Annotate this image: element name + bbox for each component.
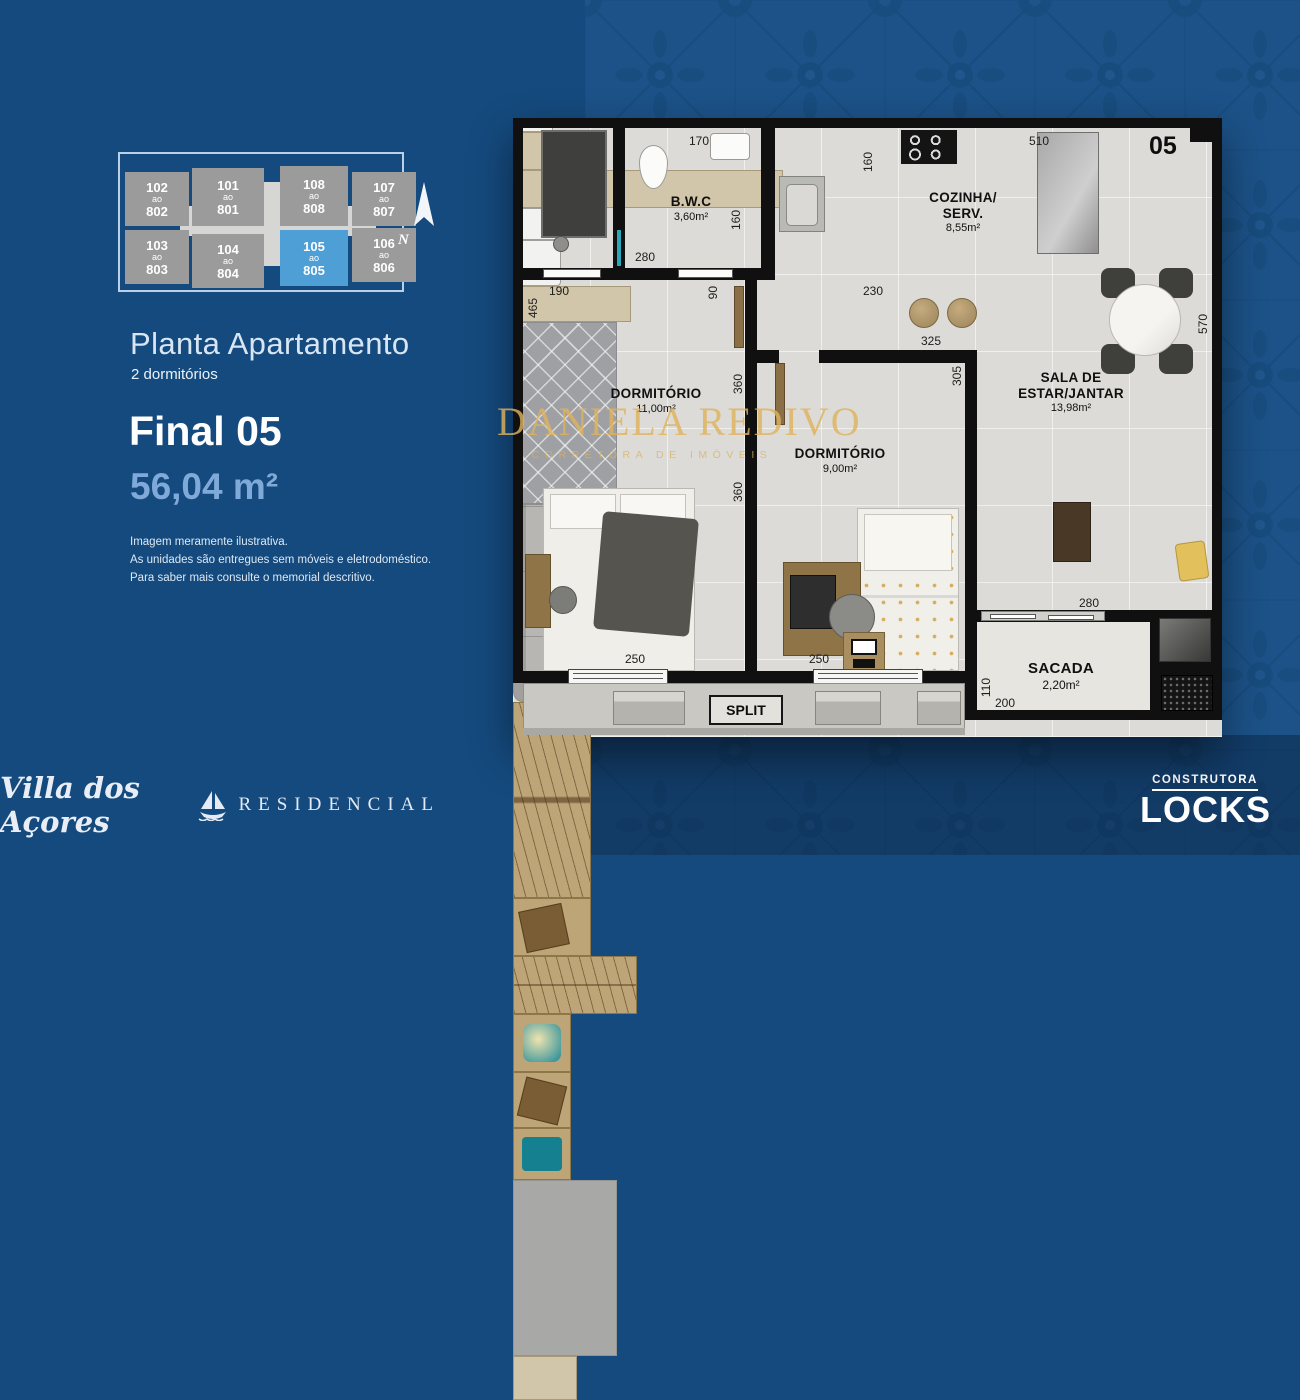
room-label-sacada: SACADA 2,20m² [993, 660, 1129, 692]
keyplan-unit-101-801: 101 ao 801 [192, 168, 264, 226]
room-label-sala: SALA DE ESTAR/JANTAR 13,98m² [1000, 370, 1142, 414]
dorm2-shelf-3 [513, 1128, 571, 1180]
dorm2-clothes-teal-yellow [523, 1024, 561, 1062]
dim-kitchen-left: 160 [861, 152, 875, 172]
dorm1-desk [525, 554, 551, 628]
dorm2-folded-clothes [517, 1077, 567, 1126]
unit-total-area: 56,04 m² [130, 466, 278, 508]
dim-dorm2-window: 250 [809, 652, 829, 666]
dim-sofa-bottom: 280 [1079, 596, 1099, 610]
keyplan-unit-103-803: 103 ao 803 [125, 230, 189, 284]
wall-dorm2-top-a [757, 350, 779, 363]
split-unit-2 [815, 691, 881, 725]
dim-dorm2-top: 325 [921, 334, 941, 348]
plan-unit-number: 05 [1149, 132, 1177, 161]
wall-dorm2-top-b [819, 350, 977, 363]
dorm2-blanket-fold [858, 595, 958, 598]
dorm2-shelf-2 [513, 1072, 571, 1128]
dining-table [1109, 284, 1181, 356]
page-subtitle: 2 dormitórios [131, 366, 218, 383]
locks-text: LOCKS [1140, 791, 1270, 829]
bwc-door [678, 269, 733, 278]
keyplan-unit-108-808: 108 ao 808 [280, 166, 348, 226]
dim-sacada-bottom: 200 [995, 696, 1015, 710]
dorm1-bed [543, 488, 695, 671]
keyplan-unit-104-804: 104 ao 804 [192, 234, 264, 288]
dim-wall-lower: 360 [731, 482, 745, 502]
dim-sala-right: 570 [1196, 314, 1210, 334]
north-label: N [398, 232, 409, 249]
shower-glass [617, 230, 621, 266]
dim-dorm2-right: 305 [950, 366, 964, 386]
dim-kitchen-top: 510 [1029, 134, 1049, 148]
entry-door [543, 269, 601, 278]
building-keyplan: 102 ao 802 101 ao 801 108 ao 808 107 ao … [118, 152, 404, 292]
disclaimer-line-2: As unidades são entregues sem móveis e e… [130, 554, 431, 566]
dorm2-pillow [864, 514, 952, 571]
dorm1-door [734, 286, 744, 348]
utility-grill [1159, 618, 1211, 662]
dorm2-wardrobe [513, 956, 637, 1014]
sailboat-icon [198, 789, 228, 821]
unit-final-label: Final 05 [129, 408, 282, 455]
wall-sacada-left [965, 610, 977, 720]
dorm2-rug [513, 1180, 617, 1356]
dorm1-window [568, 669, 668, 684]
sofa-pillow [1175, 540, 1210, 582]
nightstand-drawer-2 [853, 659, 875, 668]
shower-head [553, 236, 569, 252]
keyplan-unit-105-805-highlighted: 105 ao 805 [280, 230, 348, 286]
construtora-locks-logo: CONSTRUTORA LOCKS [1140, 770, 1270, 829]
dim-dorm1-left: 465 [526, 298, 540, 318]
refrigerator [1037, 132, 1099, 254]
dorm1-chair [549, 586, 577, 614]
dim-dorm1-shelf: 190 [549, 284, 569, 298]
residencial-text: RESIDENCIAL [238, 794, 440, 816]
watermark-tagline: CORRETORA DE IMÓVEIS [497, 449, 807, 461]
watermark-name: DANIELA REDIVO [497, 398, 807, 445]
dorm2-window [813, 669, 923, 684]
wall-dorm1-right [745, 280, 757, 683]
wall-top-right-notch [1190, 118, 1222, 142]
dorm1-folded-clothes [518, 903, 570, 953]
dorm1-blanket [593, 511, 699, 637]
ledge-edge [523, 728, 965, 735]
keyplan-unit-102-802: 102 ao 802 [125, 172, 189, 226]
stool-1 [909, 298, 939, 328]
sliding-door-leaf-1 [990, 614, 1036, 619]
split-unit-1 [613, 691, 685, 725]
dim-hall: 90 [706, 286, 720, 299]
dim-bwc-right: 160 [729, 210, 743, 230]
dorm2-teal-shirt [522, 1137, 562, 1171]
north-arrow-icon [404, 180, 438, 242]
dim-bwc-bottom: 280 [635, 250, 655, 264]
villa-script-text: Villa dos Açores [0, 771, 188, 839]
disclaimer-line-1: Imagem meramente ilustrativa. [130, 536, 288, 548]
dim-dorm1-window: 250 [625, 652, 645, 666]
sliding-door-leaf-2 [1048, 615, 1094, 620]
dim-wall-upper: 360 [731, 374, 745, 394]
realtor-watermark: DANIELA REDIVO CORRETORA DE IMÓVEIS [497, 398, 807, 461]
dorm2-shelf-1 [513, 1014, 571, 1072]
room-label-bwc: B.W.C 3,60m² [641, 194, 741, 223]
sliding-door [981, 611, 1105, 621]
bwc-sink-basin [710, 133, 750, 160]
disclaimer-line-3: Para saber mais consulte o memorial desc… [130, 572, 375, 584]
utility-coal-panel [1161, 675, 1213, 711]
dorm1-shelf [513, 898, 591, 956]
wall-bwc-kitchen [761, 118, 775, 280]
utility-shelf [513, 1356, 577, 1400]
dim-sacada-left: 110 [979, 678, 993, 697]
dim-bwc-top: 170 [689, 134, 709, 148]
stool-2 [947, 298, 977, 328]
entry-mat [541, 130, 607, 238]
stove-cooktop [901, 130, 957, 164]
room-label-kitchen: COZINHA/ SERV. 8,55m² [893, 190, 1033, 234]
dim-kitchen-bottom: 230 [863, 284, 883, 298]
villa-dos-acores-logo: Villa dos Açores RESIDENCIAL [0, 780, 440, 830]
laundry-tank [779, 176, 825, 232]
split-label: SPLIT [709, 695, 783, 725]
nightstand-drawer-1 [851, 639, 877, 655]
split-unit-3 [917, 691, 961, 725]
coffee-table [1053, 502, 1091, 562]
page-title: Planta Apartamento [130, 326, 410, 362]
laundry-basin [786, 184, 818, 226]
